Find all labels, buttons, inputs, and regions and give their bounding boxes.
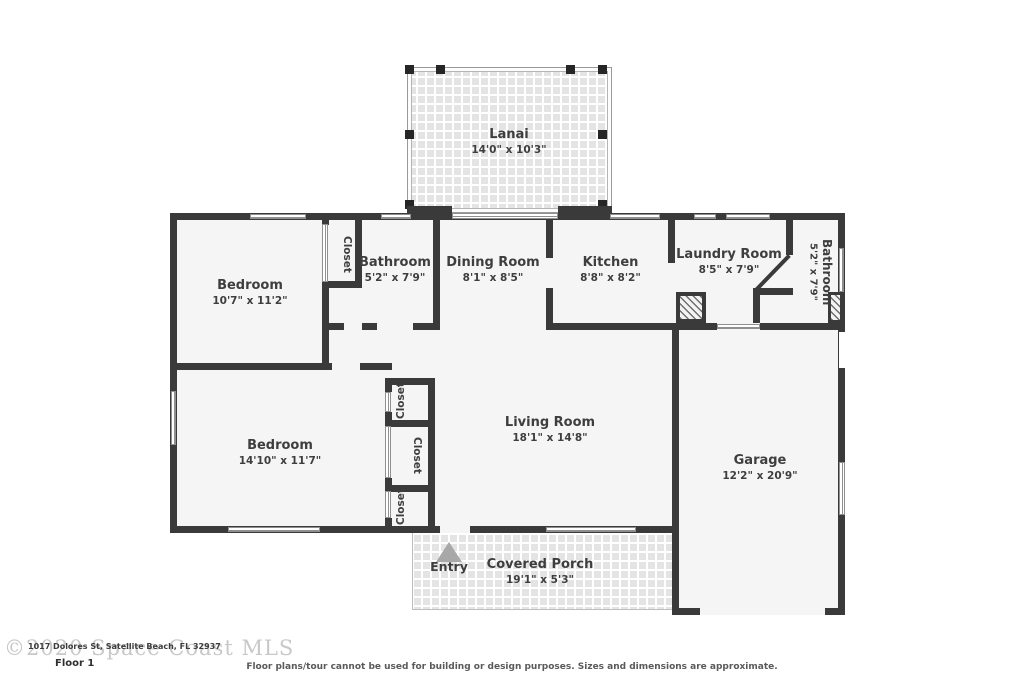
room-label-closet4: Closet — [394, 489, 424, 525]
wall-garage-bottom-right — [825, 608, 845, 615]
window-kitchen-top — [610, 214, 660, 219]
wall-dining-kitchen — [546, 213, 553, 258]
lanai-post — [405, 65, 414, 74]
property-address: 1017 Dolores St, Satellite Beach, FL 329… — [28, 642, 221, 651]
window-bedroom1-top — [250, 214, 306, 219]
room-label-dining: Dining Room 8'1" x 8'5" — [437, 255, 549, 285]
wall-bath1-bottom-a — [322, 323, 344, 330]
wall-bedroom-divider-b — [360, 363, 392, 370]
wall-bedroom-divider-a — [170, 363, 332, 370]
room-label-closet1: Closet — [328, 226, 354, 282]
wall-bath2-stub-v — [753, 295, 760, 323]
window-laundry-top-b — [726, 214, 770, 219]
sliding-door-lanai — [452, 213, 558, 219]
wall-kitchen-bottom — [546, 323, 676, 330]
room-label-closet2: Closet — [394, 383, 424, 419]
room-label-laundry: Laundry Room 8'5" x 7'9" — [673, 247, 785, 277]
room-label-closet3: Closet — [394, 426, 424, 484]
room-label-bathroom2: Bathroom 5'2" x 7'9" — [794, 218, 834, 326]
wall-lanai-connector-right — [558, 206, 612, 213]
door-garage-side — [839, 462, 845, 515]
window-bedroom2-bottom — [228, 527, 320, 532]
room-label-kitchen: Kitchen 8'8" x 8'2" — [551, 255, 670, 285]
wall-bath1-bottom-b — [362, 323, 377, 330]
wall-left — [170, 213, 177, 533]
room-label-garage: Garage 12'2" x 20'9" — [682, 453, 838, 483]
wall-garage-left — [672, 330, 679, 615]
floor-plan-page: Lanai 14'0" x 10'3" — [0, 0, 1024, 683]
water-heater-hatch — [676, 292, 706, 323]
wall-closet-col-right — [428, 378, 435, 526]
door-closet2 — [385, 392, 391, 412]
window-bedroom2-left — [171, 391, 176, 445]
window-bathroom1-top — [381, 214, 411, 219]
lanai-post — [566, 65, 575, 74]
room-label-bathroom1: Bathroom 5'2" x 7'9" — [352, 255, 438, 285]
wall-strip-bottom-a — [672, 323, 717, 330]
door-closet4 — [385, 491, 391, 518]
room-label-lanai: Lanai 14'0" x 10'3" — [409, 127, 609, 157]
window-living-bottom — [546, 527, 636, 532]
room-label-living: Living Room 18'1" x 14'8" — [435, 415, 665, 445]
room-label-porch: Covered Porch 19'1" x 5'3" — [455, 557, 625, 587]
opening-garage-right — [839, 332, 845, 368]
wall-closet-col-left-b — [385, 412, 392, 426]
window-bathroom2-right — [839, 248, 844, 292]
wall-laundry-bath2 — [786, 213, 793, 255]
window-laundry-top-a — [694, 214, 716, 219]
wall-closet-col-left-d — [385, 518, 392, 530]
door-closet3 — [385, 426, 391, 478]
wall-lanai-connector-left — [407, 206, 452, 213]
room-label-bedroom2: Bedroom 14'10" x 11'7" — [180, 438, 380, 468]
wall-closet-col-left-a — [385, 378, 392, 392]
lanai-post — [436, 65, 445, 74]
room-label-bedroom1: Bedroom 10'7" x 11'2" — [175, 278, 325, 308]
door-laundry-garage — [717, 324, 760, 329]
disclaimer-text: Floor plans/tour cannot be used for buil… — [0, 662, 1024, 672]
lanai-post — [598, 65, 607, 74]
wall-closet-col-left-c — [385, 478, 392, 491]
